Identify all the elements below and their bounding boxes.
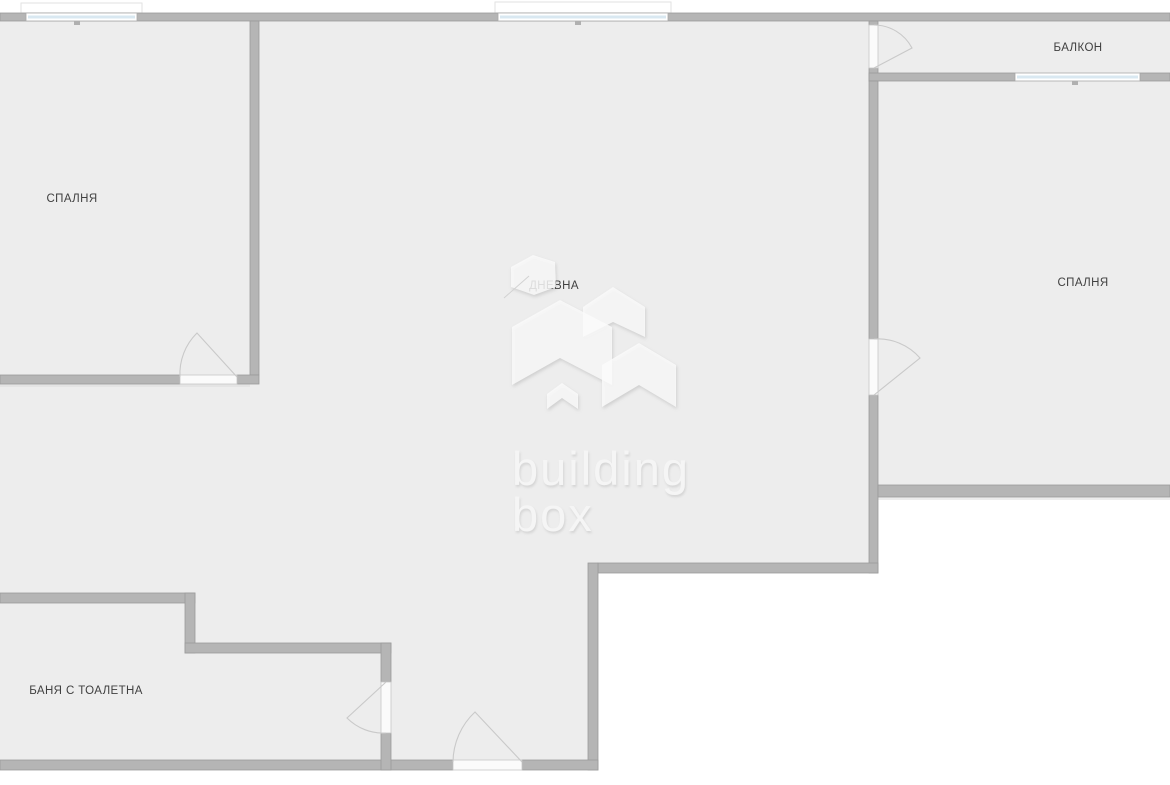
wall-bathroom-top-right <box>185 643 391 653</box>
room-label-bathroom: БАНЯ С ТОАЛЕТНА <box>29 685 143 697</box>
wall-balcony-bottom <box>1140 73 1170 81</box>
room-label-balcony: БАЛКОН <box>1054 42 1103 54</box>
watermark-text-line1: building <box>512 446 690 492</box>
watermark-text: building box <box>512 446 690 538</box>
wall-bedroom-left-right <box>250 21 259 375</box>
wall-bedroom-left-bottom <box>0 375 180 384</box>
wall-bathroom-right <box>381 733 391 770</box>
window-sill <box>21 3 142 13</box>
wall-balcony-bottom <box>869 73 1015 81</box>
window-sill <box>495 2 671 13</box>
wall-balcony-separator <box>869 21 878 25</box>
wall-shadow <box>0 384 250 387</box>
watermark-text-line2: box <box>512 492 690 538</box>
wall-bathroom-top-left <box>0 593 195 603</box>
room-label-bedroom-left: СПАЛНЯ <box>46 193 97 205</box>
wall-bedroom-left-bottom <box>237 375 259 384</box>
wall-shadow <box>878 497 1170 500</box>
wall-living-bottom-right <box>598 563 878 573</box>
wall-bedroom-right-bottom <box>878 485 1170 497</box>
wall-bedroom-right-left <box>869 81 878 339</box>
room-label-bedroom-right: СПАЛНЯ <box>1057 277 1108 289</box>
floor-plan-drawing <box>0 0 1170 785</box>
floor-area <box>0 13 1170 770</box>
floor-plan-canvas: СПАЛНЯ ДНЕВНА БАЛКОН СПАЛНЯ БАНЯ С ТОАЛЕ… <box>0 0 1170 785</box>
wall-bottom-exterior <box>522 760 598 770</box>
wall-bathroom-right <box>381 643 391 682</box>
wall-living-right-lower <box>588 563 598 770</box>
wall-bedroom-right-left <box>869 395 878 573</box>
room-label-living-room: ДНЕВНА <box>529 280 579 292</box>
